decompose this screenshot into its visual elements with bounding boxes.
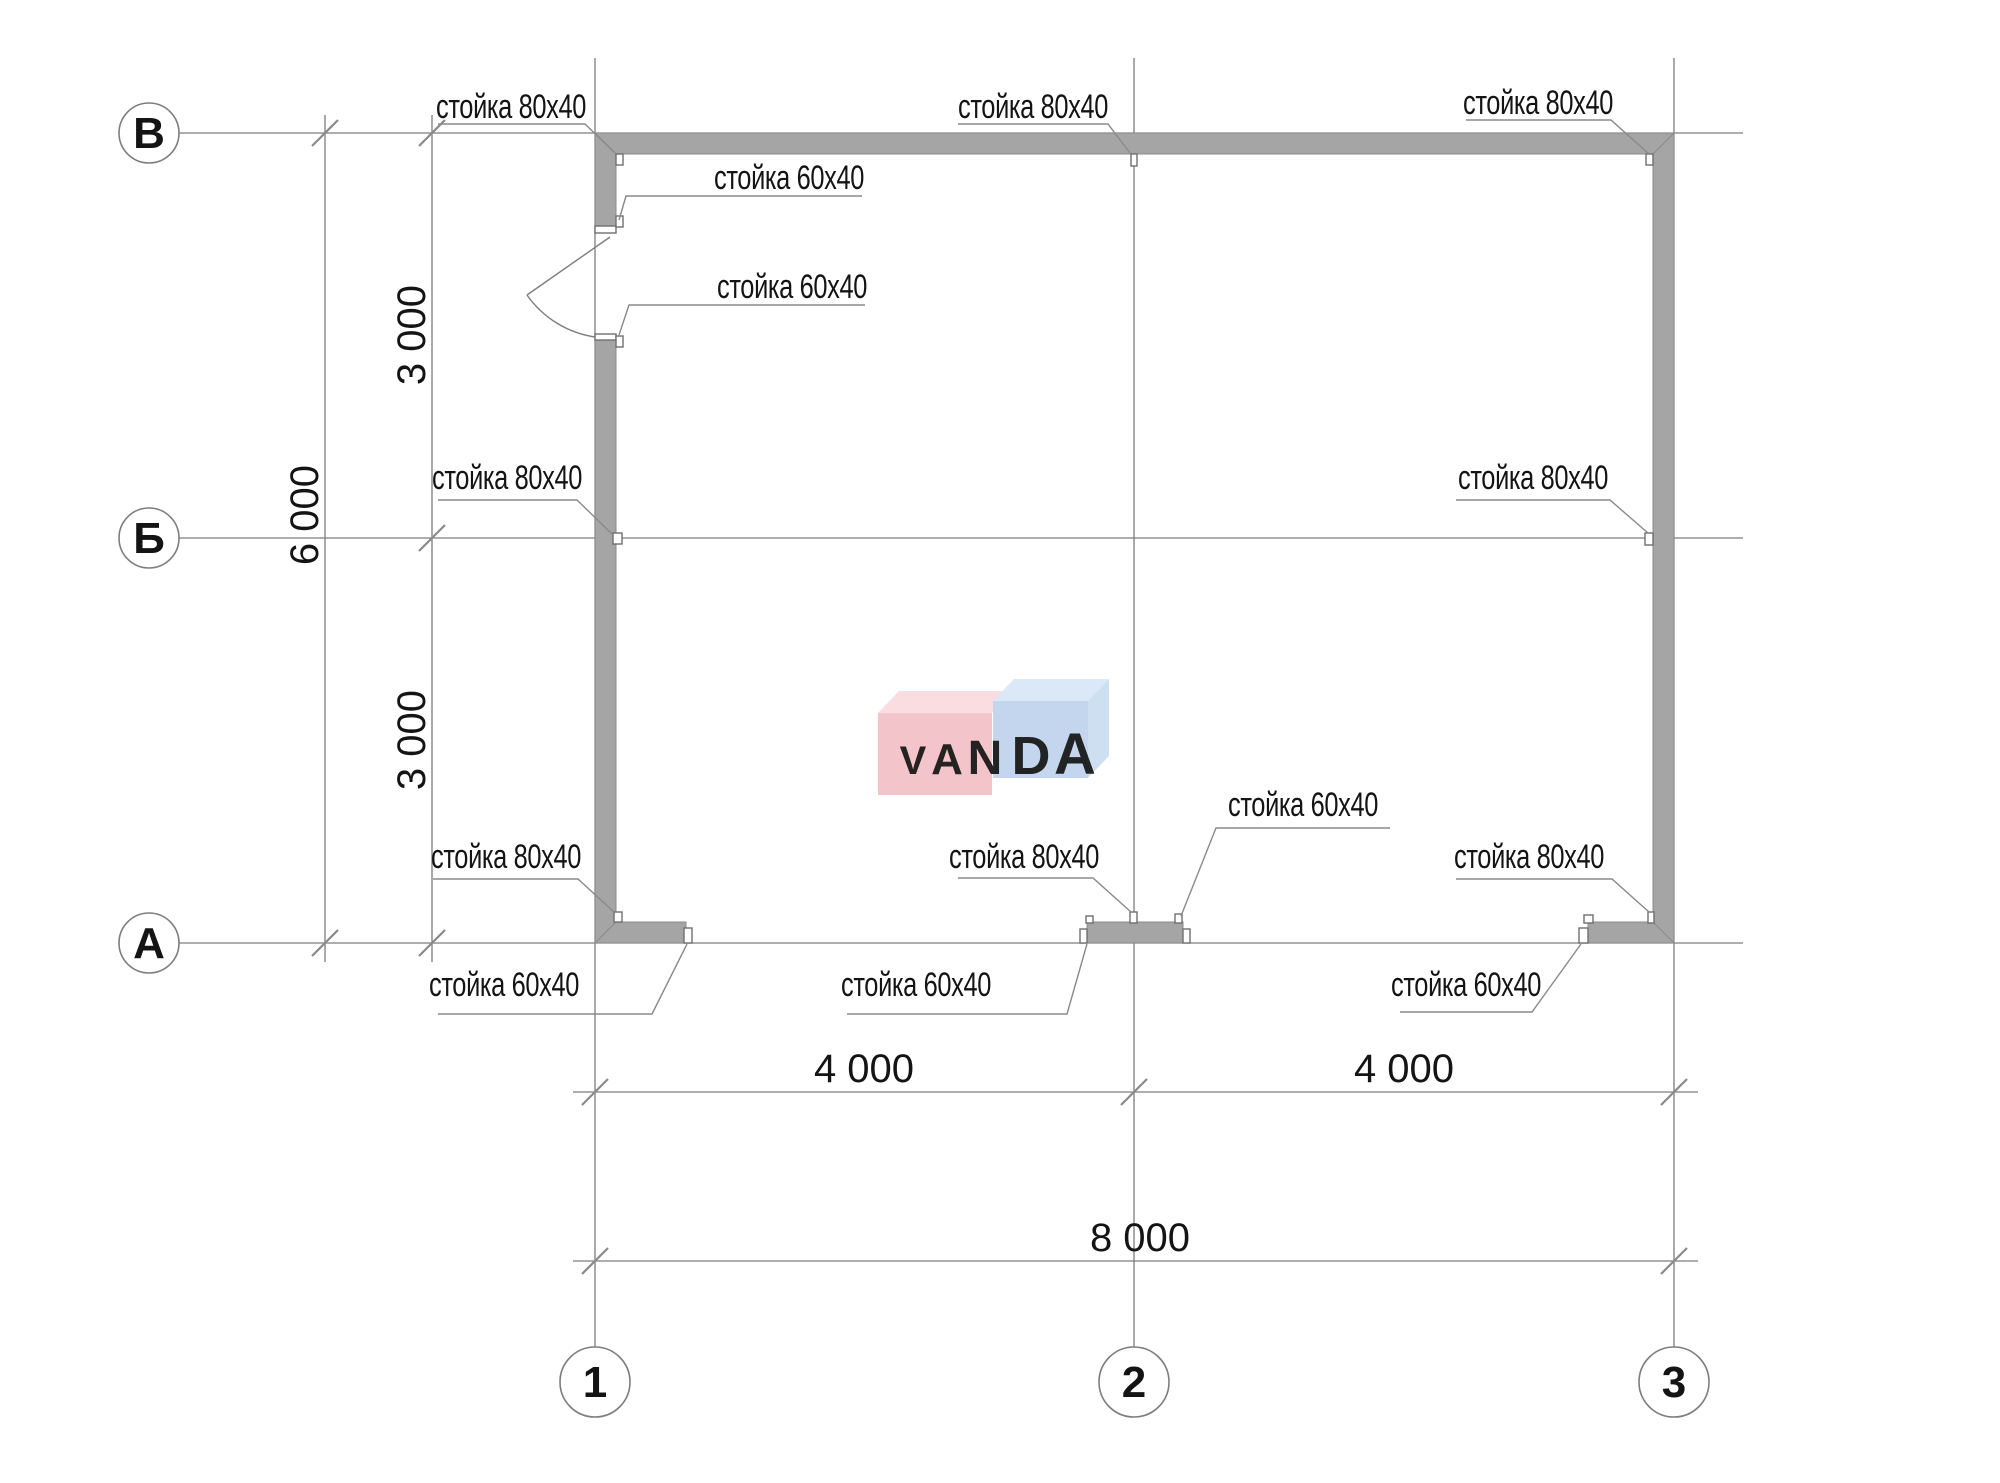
door-leaf	[527, 237, 610, 295]
door-jamb-cap-bottom	[595, 334, 616, 340]
door-jamb-cap-top	[595, 226, 616, 233]
post-marker	[616, 336, 623, 347]
col-bubble-label-2: 2	[1122, 1358, 1146, 1407]
callout-post-60x40-below-left: стойка 60x40	[429, 944, 687, 1014]
callout-leader	[433, 879, 614, 912]
post-marker	[1648, 912, 1654, 923]
callout-label: стойка 80x40	[432, 459, 582, 497]
post-marker	[1131, 154, 1137, 166]
callout-label: стойка 80x40	[1463, 84, 1613, 122]
callout-leader	[438, 124, 614, 152]
watermark-letter: D	[1012, 726, 1051, 786]
col-bubble-label-3: 3	[1662, 1358, 1686, 1407]
row-bubble-label-Б: Б	[133, 514, 165, 563]
watermark-letter: V	[900, 739, 927, 783]
floor-plan-page: V A N D A	[0, 0, 2000, 1483]
dim-row-span-2: 3 000	[390, 690, 434, 790]
opening-jamb	[1080, 929, 1087, 943]
callout-leader	[1181, 828, 1390, 916]
callout-post-80x40-top-left: стойка 80x40	[436, 88, 614, 152]
callout-post-80x40-bottom-center: стойка 80x40	[949, 838, 1131, 912]
post-marker	[1130, 912, 1137, 923]
col-bubble-label-1: 1	[583, 1358, 607, 1407]
callout-label: стойка 80x40	[436, 88, 586, 126]
callout-leader	[958, 878, 1131, 912]
wall-bottom-center-segment	[1087, 922, 1183, 943]
post-marker	[1645, 533, 1653, 545]
vanda-watermark: V A N D A	[878, 679, 1109, 795]
dim-col-total: 8 000	[1090, 1216, 1190, 1260]
door-swing-arc	[527, 295, 595, 337]
post-marker	[614, 912, 622, 922]
callout-leader	[619, 196, 862, 220]
callout-label: стойка 60x40	[429, 966, 579, 1004]
callout-post-60x40-below-center: стойка 60x40	[841, 944, 1087, 1014]
dim-col-span-2: 4 000	[1354, 1047, 1454, 1091]
callout-label: стойка 60x40	[714, 159, 864, 197]
callout-leader	[438, 500, 612, 534]
post-marker	[616, 154, 623, 165]
door	[527, 226, 616, 340]
row-bubble-label-В: В	[133, 109, 165, 158]
watermark-letter: A	[931, 735, 963, 784]
row-bubble-label-А: А	[133, 919, 165, 968]
wall-left-lower	[595, 334, 616, 943]
watermark-left-top-face	[878, 691, 1013, 713]
callout-label: стойка 80x40	[431, 838, 581, 876]
dim-col-span-1: 4 000	[814, 1047, 914, 1091]
callout-label: стойка 80x40	[949, 838, 1099, 876]
callout-label: стойка 60x40	[1391, 966, 1541, 1004]
callout-post-60x40-door-bottom: стойка 60x40	[619, 268, 867, 335]
wall-top	[595, 133, 1674, 154]
floor-plan-drawing: V A N D A	[0, 0, 2000, 1483]
callout-label: стойка 60x40	[841, 966, 991, 1004]
dim-row-total: 6 000	[283, 465, 327, 565]
opening-jamb	[1183, 929, 1190, 943]
callout-label: стойка 80x40	[1454, 838, 1604, 876]
callout-leader	[1456, 879, 1649, 912]
watermark-letter: A	[1054, 722, 1096, 787]
callout-post-60x40-door-top: стойка 60x40	[619, 159, 864, 220]
callout-post-80x40-bottom-right: стойка 80x40	[1454, 838, 1649, 912]
callout-post-60x40-above-center: стойка 60x40	[1181, 786, 1390, 916]
opening-jamb	[1579, 928, 1588, 943]
callout-post-80x40-mid-right: стойка 80x40	[1456, 459, 1648, 533]
post-marker	[1086, 916, 1093, 923]
callout-label: стойка 60x40	[717, 268, 867, 306]
callout-post-80x40-mid-left: стойка 80x40	[432, 459, 612, 534]
callout-post-60x40-below-right: стойка 60x40	[1391, 944, 1581, 1012]
wall-right	[1653, 133, 1674, 943]
callout-leader	[619, 305, 865, 335]
callout-leader	[1456, 500, 1648, 533]
watermark-letter: N	[968, 732, 1003, 785]
dim-row-span-1: 3 000	[390, 285, 434, 385]
callout-label: стойка 80x40	[1458, 459, 1608, 497]
opening-jamb	[684, 928, 692, 943]
post-marker	[1584, 915, 1593, 923]
post-marker	[1646, 154, 1653, 165]
callout-label: стойка 80x40	[958, 88, 1108, 126]
callout-post-80x40-bottom-left: стойка 80x40	[431, 838, 614, 912]
dimension-texts: 4 000 4 000 8 000 3 000 3 000 6 000	[283, 285, 1454, 1260]
post-marker	[613, 533, 622, 544]
callout-label: стойка 60x40	[1228, 786, 1378, 824]
